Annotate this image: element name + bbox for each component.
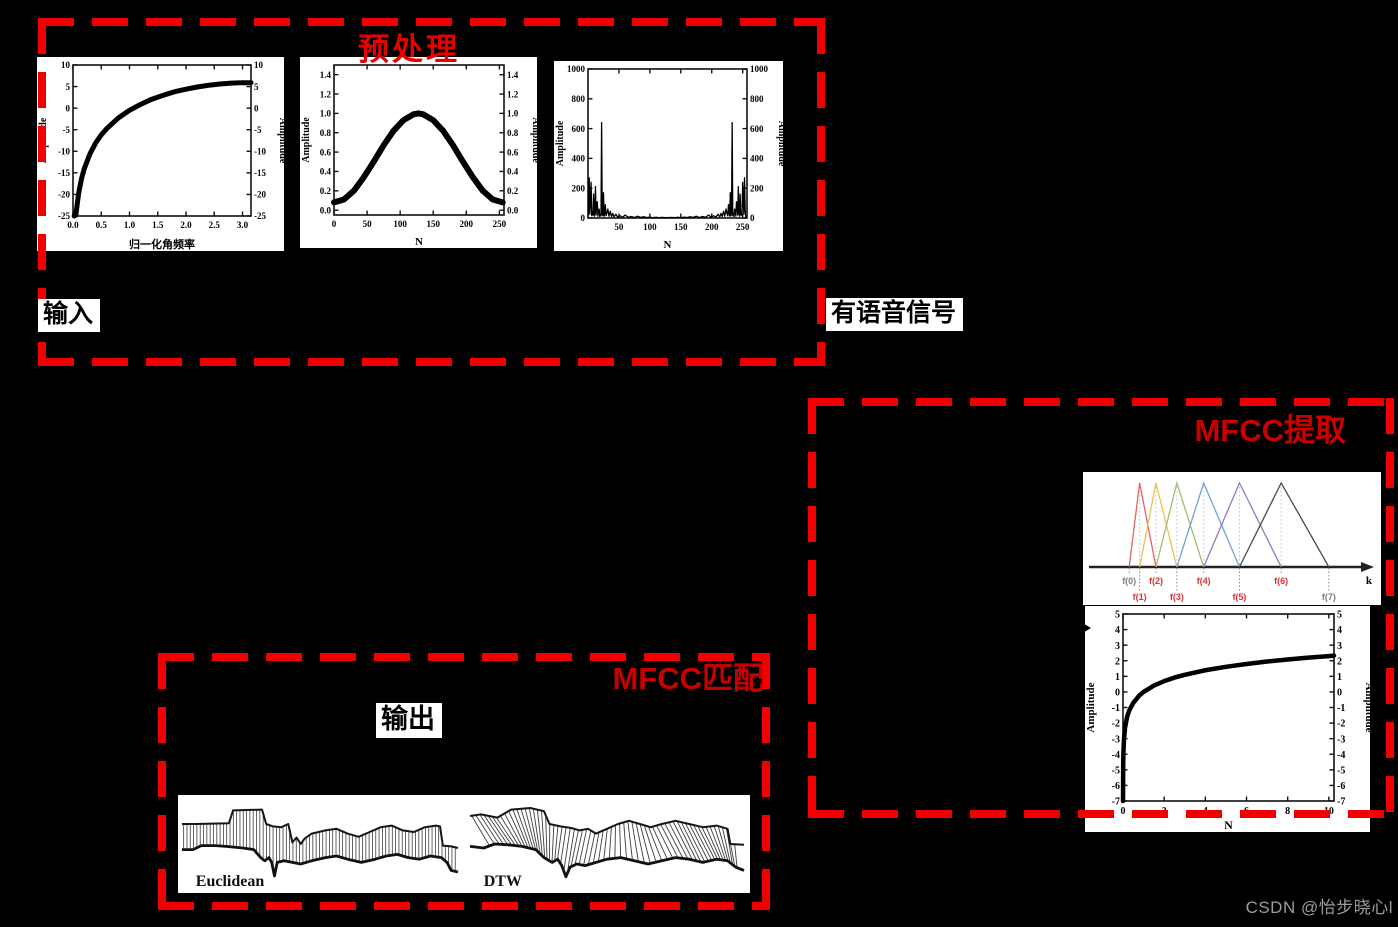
hamming-window-plot: 0.00.00.20.20.40.40.60.60.80.81.01.01.21… — [300, 57, 537, 248]
svg-text:Amplitude: Amplitude — [301, 117, 312, 163]
svg-text:0.2: 0.2 — [320, 186, 332, 196]
output-label: 输出 — [376, 703, 442, 738]
diagram-canvas: 预处理 MFCC提取 MFCC匹配 10105500-5-5-10-10-15-… — [0, 0, 1398, 927]
svg-text:N: N — [1224, 818, 1233, 832]
svg-text:150: 150 — [674, 222, 688, 232]
svg-text:f(3): f(3) — [1170, 592, 1184, 602]
svg-text:600: 600 — [572, 124, 586, 134]
arrowhead-icon — [1076, 619, 1091, 637]
svg-text:3.0: 3.0 — [237, 220, 249, 230]
svg-text:0.6: 0.6 — [507, 147, 519, 157]
svg-text:200: 200 — [750, 183, 764, 193]
svg-text:2: 2 — [1162, 806, 1167, 817]
svg-text:N: N — [664, 239, 672, 251]
mfcc-match-box-title: MFCC匹配 — [612, 653, 764, 698]
svg-text:0.0: 0.0 — [67, 220, 79, 230]
svg-text:8: 8 — [1285, 806, 1290, 817]
input-label: 输入 — [38, 299, 100, 332]
svg-text:600: 600 — [750, 124, 764, 134]
svg-text:1000: 1000 — [750, 64, 769, 74]
svg-text:Amplitude: Amplitude — [555, 120, 566, 166]
svg-text:2: 2 — [1337, 656, 1342, 667]
svg-text:f(6): f(6) — [1274, 576, 1288, 586]
dtw-comparison-panel: EuclideanDTW — [178, 795, 750, 893]
svg-text:f(2): f(2) — [1149, 576, 1163, 586]
svg-text:3: 3 — [1337, 641, 1342, 652]
svg-text:Amplitude: Amplitude — [530, 117, 537, 163]
svg-text:-5: -5 — [1112, 765, 1120, 776]
svg-text:-2: -2 — [1337, 719, 1345, 730]
preprocess-border-top — [38, 18, 825, 26]
mfcc-match-border-bottom — [158, 902, 770, 910]
svg-text:0: 0 — [750, 213, 755, 223]
svg-text:10: 10 — [254, 60, 264, 70]
svg-text:1: 1 — [1337, 672, 1342, 683]
svg-text:-4: -4 — [1112, 750, 1120, 761]
svg-text:4: 4 — [1203, 806, 1208, 817]
svg-text:0.8: 0.8 — [320, 128, 332, 138]
svg-text:f(4): f(4) — [1197, 576, 1211, 586]
svg-text:800: 800 — [750, 94, 764, 104]
hamming-chart-svg: 0.00.00.20.20.40.40.60.60.80.81.01.01.21… — [300, 57, 537, 248]
svg-text:Amplitude: Amplitude — [38, 117, 49, 163]
svg-text:-5: -5 — [1337, 765, 1345, 776]
svg-text:-1: -1 — [1112, 703, 1120, 714]
svg-text:0: 0 — [66, 103, 71, 113]
fft-spectrum-plot: 0020020040040060060080080010001000501001… — [554, 61, 783, 251]
svg-text:1.0: 1.0 — [507, 109, 519, 119]
svg-text:5: 5 — [1115, 610, 1120, 621]
svg-text:-10: -10 — [58, 147, 70, 157]
svg-text:400: 400 — [750, 154, 764, 164]
svg-text:0: 0 — [1337, 688, 1342, 699]
svg-text:200: 200 — [572, 183, 586, 193]
svg-text:250: 250 — [736, 222, 750, 232]
svg-text:-5: -5 — [254, 125, 262, 135]
svg-text:0: 0 — [1115, 688, 1120, 699]
svg-text:0.5: 0.5 — [96, 220, 108, 230]
svg-text:-3: -3 — [1337, 734, 1345, 745]
svg-text:1.4: 1.4 — [507, 70, 519, 80]
filterbank-chart-svg: kf(0)f(1)f(2)f(3)f(4)f(5)f(6)f(7) — [1083, 472, 1381, 605]
svg-text:1000: 1000 — [567, 64, 586, 74]
svg-text:0: 0 — [254, 103, 259, 113]
svg-text:100: 100 — [643, 222, 657, 232]
mel-filterbank-plot: kf(0)f(1)f(2)f(3)f(4)f(5)f(6)f(7) — [1083, 472, 1381, 605]
svg-text:-7: -7 — [1112, 797, 1120, 808]
svg-text:-6: -6 — [1337, 781, 1345, 792]
svg-text:0: 0 — [332, 219, 337, 229]
svg-text:200: 200 — [460, 219, 474, 229]
svg-text:200: 200 — [705, 222, 719, 232]
svg-text:50: 50 — [363, 219, 373, 229]
svg-text:-2: -2 — [1112, 719, 1120, 730]
svg-text:-15: -15 — [58, 168, 70, 178]
svg-text:0: 0 — [1121, 806, 1126, 817]
alignment-chart-svg: EuclideanDTW — [178, 795, 750, 893]
svg-text:f(0): f(0) — [1122, 576, 1136, 586]
svg-text:4: 4 — [1337, 625, 1342, 636]
svg-text:0.6: 0.6 — [320, 147, 332, 157]
svg-text:-5: -5 — [63, 125, 71, 135]
log-amplitude-plot: 554433221100-1-1-2-2-3-3-4-4-5-5-6-6-7-7… — [1085, 606, 1370, 832]
svg-text:5: 5 — [1337, 610, 1342, 621]
svg-text:-3: -3 — [1112, 734, 1120, 745]
svg-text:2.5: 2.5 — [209, 220, 221, 230]
svg-text:-7: -7 — [1337, 797, 1345, 808]
preemphasis-chart-svg: 10105500-5-5-10-10-15-15-20-20-25-250.00… — [37, 57, 284, 251]
preprocess-border-right — [817, 18, 825, 366]
mfcc-extract-border-right — [1386, 398, 1394, 818]
svg-text:N: N — [415, 236, 423, 248]
svg-text:0.0: 0.0 — [320, 205, 332, 215]
svg-text:-6: -6 — [1112, 781, 1120, 792]
mfcc-extract-box-title: MFCC提取 — [1194, 405, 1346, 450]
svg-text:-1: -1 — [1337, 703, 1345, 714]
svg-text:1: 1 — [1115, 672, 1120, 683]
logcurve-chart-svg: 554433221100-1-1-2-2-3-3-4-4-5-5-6-6-7-7… — [1085, 606, 1370, 832]
svg-text:k: k — [1366, 575, 1373, 587]
svg-text:1.5: 1.5 — [152, 220, 164, 230]
watermark: CSDN @怡步晓心l — [1246, 893, 1393, 918]
svg-text:Amplitude: Amplitude — [1363, 682, 1370, 732]
svg-text:-10: -10 — [254, 147, 266, 157]
svg-text:250: 250 — [493, 219, 507, 229]
svg-text:3: 3 — [1115, 641, 1120, 652]
svg-text:1.2: 1.2 — [320, 89, 332, 99]
svg-text:归一化角频率: 归一化角频率 — [129, 237, 195, 251]
mfcc-extract-border-top — [808, 398, 1394, 406]
svg-text:1.0: 1.0 — [320, 109, 332, 119]
svg-text:5: 5 — [254, 82, 259, 92]
svg-text:0: 0 — [581, 213, 586, 223]
svg-text:f(5): f(5) — [1232, 592, 1246, 602]
svg-text:50: 50 — [614, 222, 624, 232]
svg-text:DTW: DTW — [484, 873, 522, 890]
svg-text:1.0: 1.0 — [124, 220, 136, 230]
svg-text:6: 6 — [1244, 806, 1249, 817]
svg-text:-4: -4 — [1337, 750, 1345, 761]
svg-text:100: 100 — [393, 219, 407, 229]
svg-text:Amplitude: Amplitude — [776, 121, 783, 167]
svg-text:400: 400 — [572, 154, 586, 164]
speech-signal-label: 有语音信号 — [826, 298, 963, 331]
svg-text:0.8: 0.8 — [507, 128, 519, 138]
svg-text:1.2: 1.2 — [507, 89, 519, 99]
svg-text:Amplitude: Amplitude — [277, 118, 284, 164]
svg-text:-20: -20 — [254, 190, 266, 200]
svg-text:-20: -20 — [58, 190, 70, 200]
mfcc-match-border-right — [762, 653, 770, 910]
svg-text:Amplitude: Amplitude — [1085, 682, 1097, 732]
fft-chart-svg: 0020020040040060060080080010001000501001… — [554, 61, 783, 251]
svg-text:2: 2 — [1115, 656, 1120, 667]
svg-text:10: 10 — [61, 60, 71, 70]
svg-text:5: 5 — [66, 82, 71, 92]
svg-text:4: 4 — [1115, 625, 1120, 636]
mfcc-extract-border-left — [808, 398, 816, 818]
mfcc-match-border-left — [158, 653, 166, 910]
svg-text:0.4: 0.4 — [507, 167, 519, 177]
svg-text:f(7): f(7) — [1322, 592, 1336, 602]
svg-text:2.0: 2.0 — [180, 220, 192, 230]
svg-text:800: 800 — [572, 94, 586, 104]
mfcc-match-border-top — [158, 653, 770, 661]
preprocess-border-bottom — [38, 358, 825, 366]
svg-text:-25: -25 — [254, 211, 266, 221]
svg-text:f(1): f(1) — [1133, 592, 1147, 602]
svg-text:0.4: 0.4 — [320, 167, 332, 177]
svg-text:0.2: 0.2 — [507, 186, 519, 196]
svg-text:10: 10 — [1324, 806, 1334, 817]
svg-text:-15: -15 — [254, 168, 266, 178]
svg-text:0.0: 0.0 — [507, 205, 519, 215]
svg-text:150: 150 — [426, 219, 440, 229]
svg-text:1.4: 1.4 — [320, 70, 332, 80]
preemphasis-response-plot: 10105500-5-5-10-10-15-15-20-20-25-250.00… — [37, 57, 284, 251]
svg-text:Euclidean: Euclidean — [196, 873, 265, 890]
